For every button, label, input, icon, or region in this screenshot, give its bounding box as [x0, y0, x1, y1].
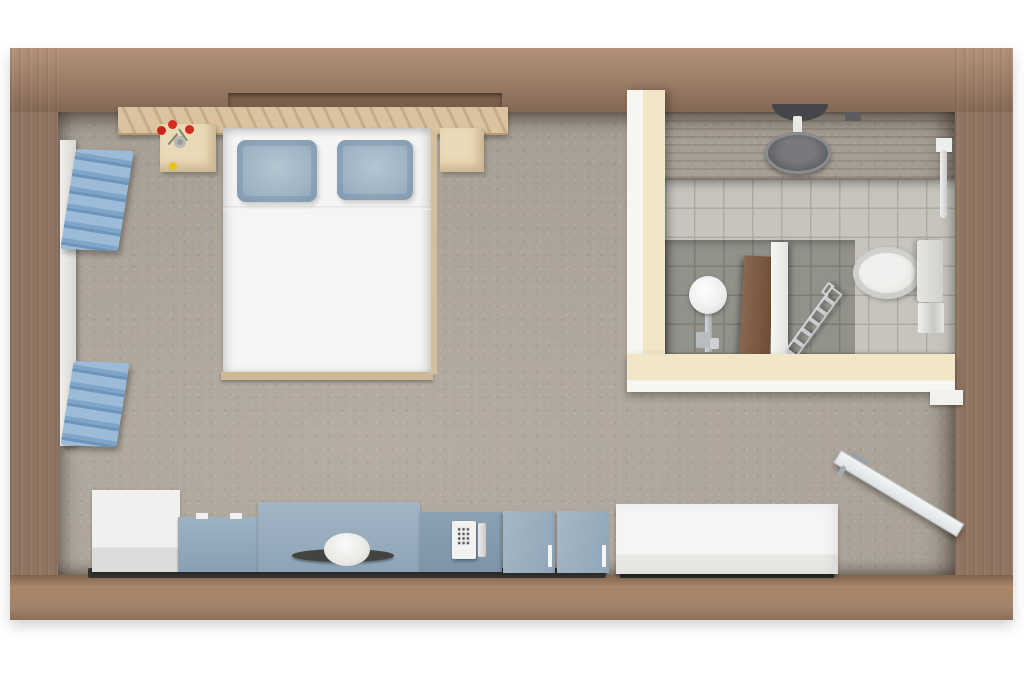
- bathroom-wall-left: [627, 90, 665, 356]
- floor-plan-stage: [0, 0, 1024, 683]
- toilet-tank: [917, 240, 943, 302]
- wall-top: [10, 48, 1013, 112]
- flower-yellow: [169, 162, 177, 170]
- bed-frame-bottom: [221, 372, 433, 380]
- pillow-left: [237, 140, 317, 202]
- flower-red: [157, 126, 166, 135]
- toilet-bowl: [853, 247, 921, 299]
- shower-control: [845, 112, 861, 121]
- toilet-bin: [918, 303, 944, 333]
- panel-handle: [602, 545, 606, 567]
- cabinet-handle: [230, 513, 242, 519]
- panel-handle: [548, 545, 552, 567]
- towel-rail: [940, 150, 947, 218]
- nightstand-right: [440, 128, 484, 172]
- bathroom-wall-bottom: [627, 354, 955, 392]
- vanity-sink: [324, 533, 370, 566]
- cabinet-white: [92, 490, 180, 572]
- phone-handset: [478, 523, 486, 557]
- shower-partition: [771, 242, 788, 355]
- leaning-panel: [557, 511, 609, 573]
- cabinet-handle: [196, 513, 208, 519]
- wall-right: [955, 48, 1013, 620]
- flower-red: [185, 125, 194, 134]
- cabinet-blue-small: [178, 517, 258, 572]
- wall-left: [10, 48, 58, 620]
- door-jamb: [930, 390, 963, 405]
- phone-keypad: [457, 527, 470, 545]
- flower-red: [168, 120, 177, 129]
- pedestal-sink-basin: [689, 276, 727, 314]
- pillow-right: [337, 140, 413, 200]
- wall-bottom: [10, 575, 1013, 620]
- nightstand-left: [160, 124, 216, 172]
- sideboard: [616, 504, 838, 574]
- pedestal-sink-faucet: [696, 332, 710, 348]
- bed-frame-right: [431, 131, 437, 374]
- leaning-panel: [503, 511, 555, 573]
- shower-head-icon: [765, 132, 831, 174]
- flower-vase-center: [174, 136, 186, 148]
- bathroom-door: [739, 255, 774, 355]
